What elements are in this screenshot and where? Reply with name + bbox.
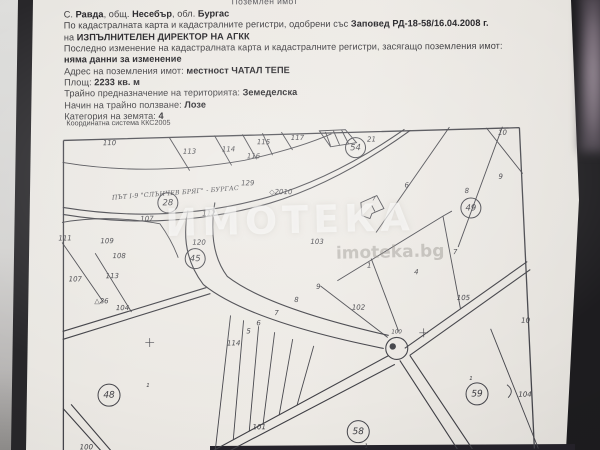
watermark-url: imoteka.bg: [310, 241, 470, 265]
document-content: Поземлен имот С. Равда, общ. Несебър, об…: [0, 0, 600, 450]
road-junction-symbol: [386, 337, 408, 359]
roads: [61, 129, 531, 450]
watermark-text: ИМОТЕКА: [139, 195, 440, 246]
photo-of-cadastral-document: Поземлен имот С. Равда, общ. Несебър, об…: [0, 0, 600, 450]
parcel-boundaries: [61, 127, 538, 450]
